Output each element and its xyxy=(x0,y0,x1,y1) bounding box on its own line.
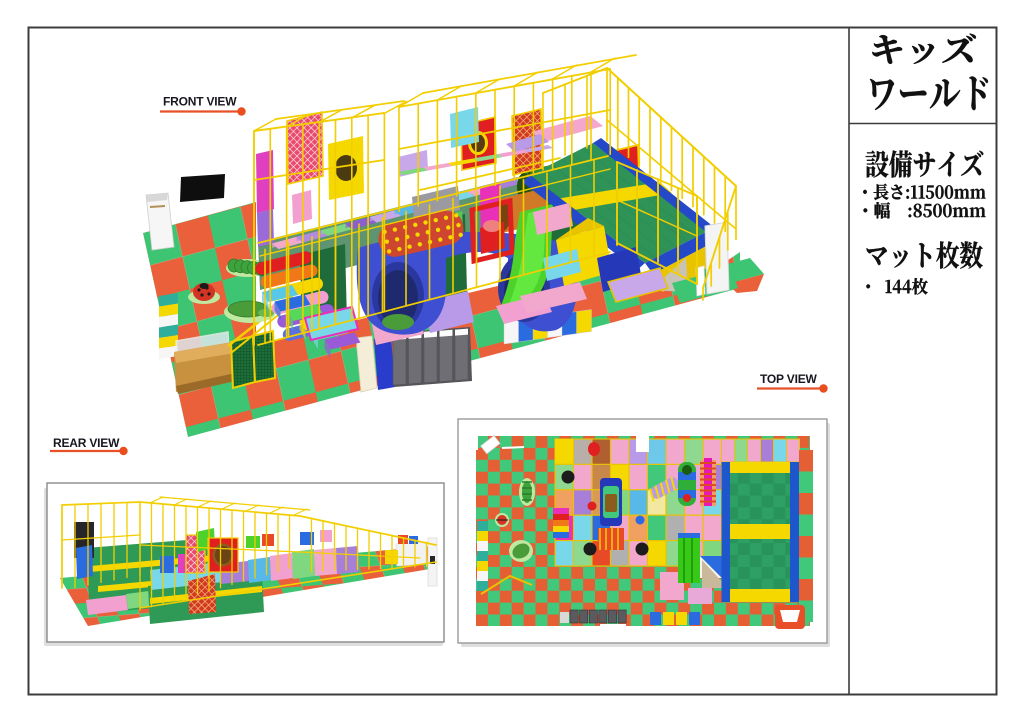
svg-text:REAR VIEW: REAR VIEW xyxy=(53,436,120,450)
svg-text:FRONT VIEW: FRONT VIEW xyxy=(163,95,237,109)
svg-text:TOP VIEW: TOP VIEW xyxy=(760,372,818,386)
